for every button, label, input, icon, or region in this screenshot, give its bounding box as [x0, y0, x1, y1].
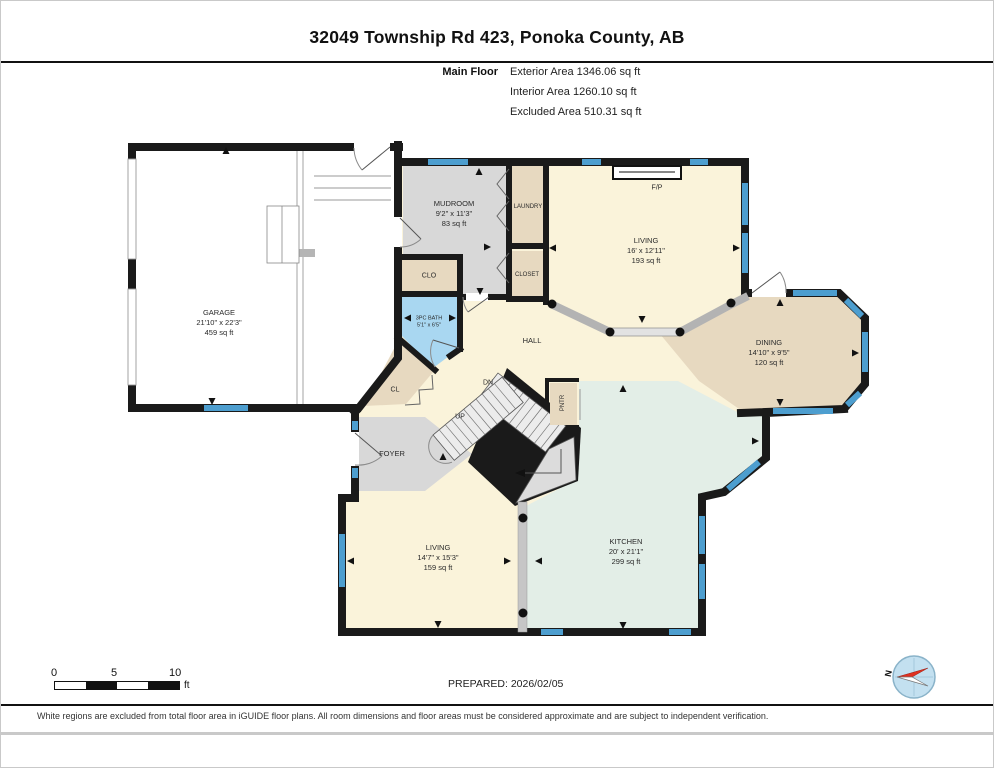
scale-unit-label: ft [184, 680, 190, 691]
kitchen-divider-wall [518, 502, 528, 632]
footer-divider [1, 704, 993, 706]
scale-tick-0: 0 [51, 667, 57, 679]
floor-plan-drawing: N [1, 1, 994, 768]
pantry [550, 383, 580, 425]
prepared-date: PREPARED: 2026/02/05 [448, 678, 563, 690]
floor-plan-page: 32049 Township Rd 423, Ponoka County, AB… [0, 0, 994, 768]
compass-north-label: N [883, 669, 894, 677]
scale-tick-10: 10 [169, 667, 181, 679]
garage-window-1 [128, 159, 136, 259]
closet-area [511, 251, 545, 299]
fireplace-icon [613, 166, 681, 179]
garage-window-2 [128, 289, 136, 385]
garage-area [132, 147, 398, 408]
disclaimer-text: White regions are excluded from total fl… [37, 711, 768, 721]
clo-area [400, 258, 460, 292]
bottom-border-band [1, 732, 993, 735]
laundry-area [511, 165, 545, 245]
scale-bar: 0 5 10 ft [54, 667, 204, 693]
compass-icon: N [883, 656, 935, 698]
scale-tick-5: 5 [111, 667, 117, 679]
scale-bar-segments [54, 681, 180, 690]
